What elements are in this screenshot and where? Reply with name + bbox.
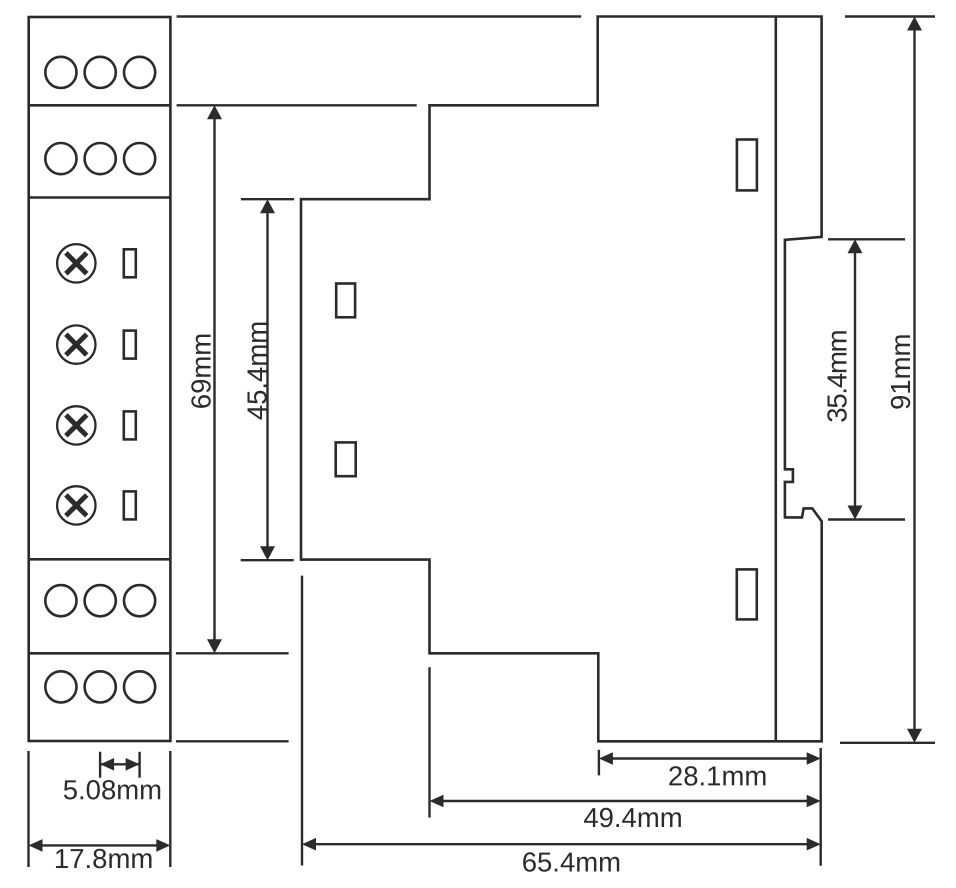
svg-text:28.1mm: 28.1mm (668, 760, 767, 791)
svg-text:17.8mm: 17.8mm (54, 843, 153, 874)
svg-text:69mm: 69mm (185, 333, 216, 409)
svg-text:35.4mm: 35.4mm (822, 330, 853, 422)
svg-text:91mm: 91mm (885, 334, 916, 410)
svg-text:49.4mm: 49.4mm (583, 802, 682, 833)
svg-text:65.4mm: 65.4mm (522, 846, 621, 877)
svg-text:5.08mm: 5.08mm (63, 774, 162, 805)
svg-text:45.4mm: 45.4mm (242, 321, 273, 420)
